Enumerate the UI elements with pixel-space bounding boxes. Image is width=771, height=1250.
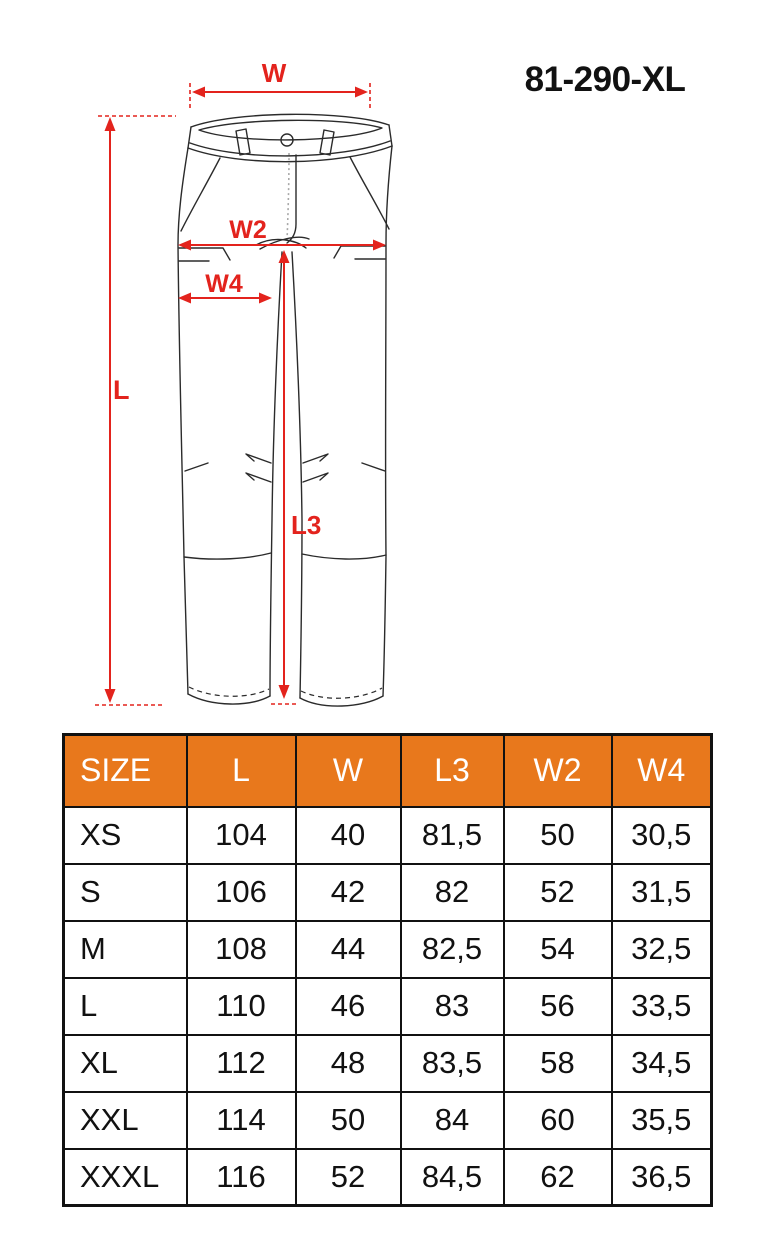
- cell-l: 110: [187, 978, 296, 1035]
- cell-l3: 84,5: [401, 1149, 504, 1206]
- cell-w: 50: [296, 1092, 401, 1149]
- cell-l3: 82,5: [401, 921, 504, 978]
- column-header-w: W: [296, 735, 401, 807]
- dimension-l: L: [95, 116, 176, 705]
- cell-w4: 33,5: [612, 978, 712, 1035]
- inseam-right: [292, 252, 302, 698]
- cell-size: XXL: [64, 1092, 187, 1149]
- cell-w: 40: [296, 807, 401, 864]
- cell-w2: 50: [504, 807, 612, 864]
- belt-loop-right: [320, 130, 334, 155]
- thigh-pocket-left: [179, 248, 230, 261]
- cell-l: 116: [187, 1149, 296, 1206]
- pocket-right: [350, 157, 389, 229]
- size-table-body: XS 104 40 81,5 50 30,5 S 106 42 82 52 31…: [64, 807, 712, 1206]
- knee-seam-right: [302, 554, 386, 559]
- cell-l3: 83: [401, 978, 504, 1035]
- cell-w2: 58: [504, 1035, 612, 1092]
- cell-l3: 82: [401, 864, 504, 921]
- cell-w: 48: [296, 1035, 401, 1092]
- cell-w: 42: [296, 864, 401, 921]
- cell-w4: 36,5: [612, 1149, 712, 1206]
- cell-w2: 60: [504, 1092, 612, 1149]
- column-header-l3: L3: [401, 735, 504, 807]
- cell-size: XXXL: [64, 1149, 187, 1206]
- cell-size: XS: [64, 807, 187, 864]
- cell-size: S: [64, 864, 187, 921]
- table-row-m: M 108 44 82,5 54 32,5: [64, 921, 712, 978]
- cell-size: L: [64, 978, 187, 1035]
- cell-w2: 54: [504, 921, 612, 978]
- header-row: SIZE L W L3 W2 W4: [64, 735, 712, 807]
- dimension-label-l3: L3: [291, 510, 321, 540]
- column-header-w2: W2: [504, 735, 612, 807]
- column-header-size: SIZE: [64, 735, 187, 807]
- cell-w: 52: [296, 1149, 401, 1206]
- cell-l: 106: [187, 864, 296, 921]
- dimension-label-l: L: [113, 375, 130, 405]
- table-row-l: L 110 46 83 56 33,5: [64, 978, 712, 1035]
- dimension-w4: W4: [178, 270, 272, 304]
- cell-w4: 35,5: [612, 1092, 712, 1149]
- pocket-left: [181, 158, 220, 231]
- cell-size: XL: [64, 1035, 187, 1092]
- cell-w2: 62: [504, 1149, 612, 1206]
- dimension-label-w4: W4: [205, 270, 243, 298]
- knee-seam-left: [184, 553, 271, 559]
- column-header-w4: W4: [612, 735, 712, 807]
- dimension-w: W: [190, 58, 370, 111]
- inseam-left: [270, 252, 282, 696]
- trousers-diagram: W L W2 W4: [0, 0, 771, 731]
- cell-w4: 34,5: [612, 1035, 712, 1092]
- size-table: SIZE L W L3 W2 W4 XS 104 40 81,5 50 30,5…: [62, 733, 713, 1207]
- hem-right: [300, 688, 383, 706]
- cell-w: 44: [296, 921, 401, 978]
- belt-loop-left: [236, 129, 250, 155]
- size-table-header: SIZE L W L3 W2 W4: [64, 735, 712, 807]
- outseam-right: [383, 146, 392, 696]
- cell-l: 114: [187, 1092, 296, 1149]
- size-chart-page: 81-290-XL: [0, 0, 771, 1250]
- column-header-l: L: [187, 735, 296, 807]
- hem-left: [188, 687, 270, 704]
- cell-w2: 52: [504, 864, 612, 921]
- knee-darts-right: [303, 454, 385, 482]
- table-row-s: S 106 42 82 52 31,5: [64, 864, 712, 921]
- cell-w: 46: [296, 978, 401, 1035]
- table-row-xxxl: XXXL 116 52 84,5 62 36,5: [64, 1149, 712, 1206]
- cell-l: 112: [187, 1035, 296, 1092]
- cell-w4: 31,5: [612, 864, 712, 921]
- cell-l: 104: [187, 807, 296, 864]
- table-row-xs: XS 104 40 81,5 50 30,5: [64, 807, 712, 864]
- cell-l3: 84: [401, 1092, 504, 1149]
- cell-l3: 83,5: [401, 1035, 504, 1092]
- waistband: [188, 114, 392, 161]
- dimension-w2: W2: [178, 216, 386, 251]
- fly-stitch: [287, 153, 289, 241]
- table-row-xxl: XXL 114 50 84 60 35,5: [64, 1092, 712, 1149]
- cell-l: 108: [187, 921, 296, 978]
- cell-size: M: [64, 921, 187, 978]
- cell-l3: 81,5: [401, 807, 504, 864]
- table-row-xl: XL 112 48 83,5 58 34,5: [64, 1035, 712, 1092]
- cell-w2: 56: [504, 978, 612, 1035]
- dimension-label-w2: W2: [229, 216, 267, 244]
- knee-darts-left: [185, 454, 271, 482]
- dimension-label-w: W: [262, 58, 287, 88]
- cell-w4: 32,5: [612, 921, 712, 978]
- outseam-left: [178, 148, 188, 694]
- cell-w4: 30,5: [612, 807, 712, 864]
